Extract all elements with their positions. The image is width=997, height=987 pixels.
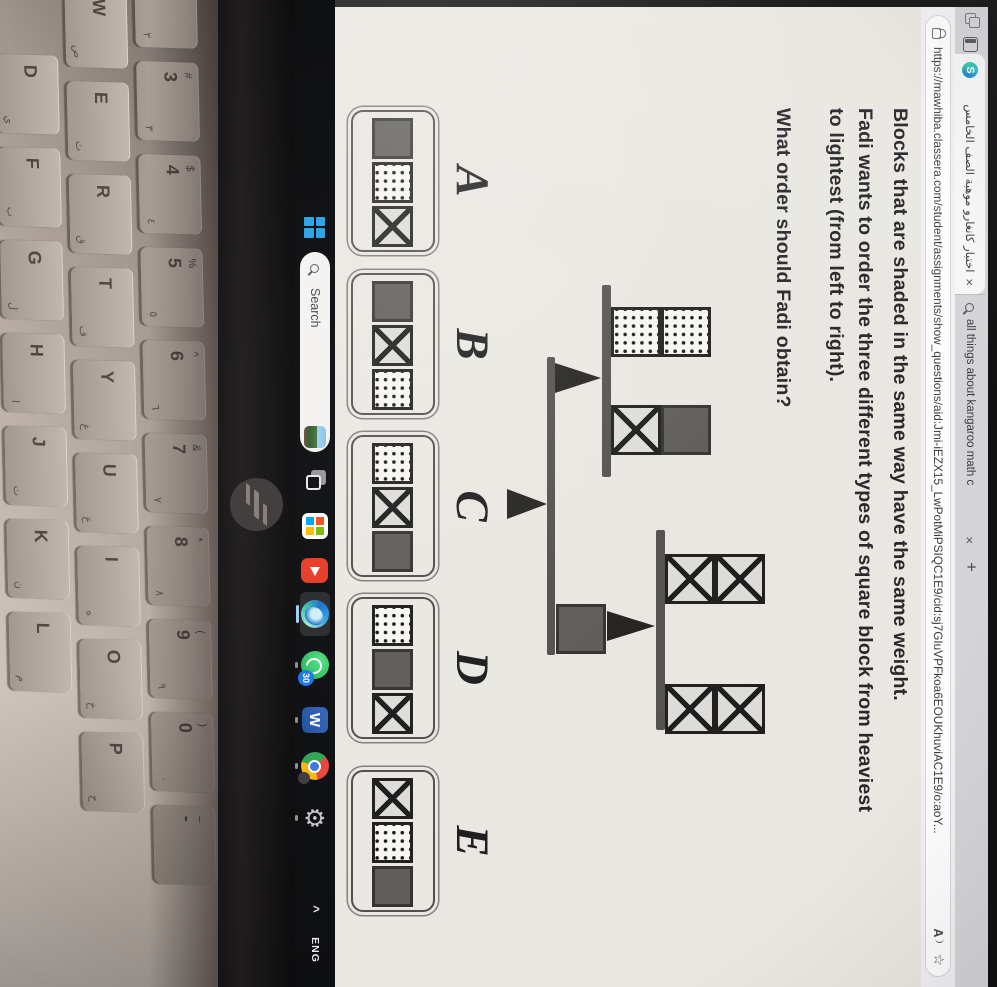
keyboard-key-6: ^6٦ <box>142 340 206 421</box>
option-letter: C <box>441 435 501 577</box>
running-indicator <box>295 662 298 668</box>
keyboard-key-O: Oخ <box>79 639 143 720</box>
main-beam <box>547 357 555 655</box>
balance-figure <box>490 277 782 797</box>
block-x <box>373 778 414 819</box>
hp-logo <box>230 478 283 531</box>
word-button[interactable]: W <box>300 704 330 736</box>
bing-daily-image-icon <box>304 426 326 448</box>
whatsapp-icon: 30 <box>301 651 329 679</box>
keyboard-key-G: Gل <box>0 240 64 321</box>
option-choice-box[interactable] <box>351 110 435 252</box>
hp-logo-glyph <box>246 483 267 526</box>
search-favicon-icon <box>966 303 975 312</box>
keyboard-key-T: Tف <box>71 267 135 348</box>
option-letter: A <box>441 110 501 252</box>
block-gray <box>661 405 711 455</box>
block-dotted <box>373 605 414 646</box>
keyboard-key-9: (9٩ <box>149 619 213 700</box>
laptop-screen: S اختبار كانغارو موهبة الصف الخامس × all… <box>335 0 997 987</box>
block-gray <box>373 531 414 572</box>
settings-button[interactable]: ⚙ <box>300 802 330 834</box>
keyboard-qwerty-row: WصEثRقTفYغUعIهOخPح <box>64 0 145 827</box>
keyboard-key-J: Jت <box>4 426 68 507</box>
laptop-bezel <box>218 0 295 987</box>
left-scale-left-stack <box>611 307 711 357</box>
keyboard-home-row: DيFبGلHاJتKنLم <box>0 54 73 707</box>
keyboard-number-row: @2٢#3٣$4٤%5٥^6٦&7٧*8٨(9٩)0٠_- <box>134 0 217 900</box>
option-letter: D <box>441 597 501 739</box>
question-text-line: to lightest (from left to right). <box>824 108 847 382</box>
option-choice-box[interactable] <box>351 770 435 912</box>
block-x <box>665 684 715 734</box>
read-aloud-icon[interactable]: A <box>931 928 945 943</box>
answer-option-a: A <box>351 110 501 252</box>
block-x <box>611 405 661 455</box>
block-x <box>373 206 414 247</box>
keyboard-key-R: Rق <box>69 174 133 255</box>
block-gray <box>556 604 606 654</box>
gear-icon: ⚙ <box>303 807 328 829</box>
block-gray <box>373 281 414 322</box>
tab-actions-icon[interactable] <box>962 13 980 31</box>
tab-title: all things about kangaroo math c <box>964 319 976 530</box>
block-gray <box>373 118 414 159</box>
edge-button[interactable] <box>300 592 330 636</box>
chrome-icon <box>301 752 329 780</box>
site-info-icon[interactable] <box>932 28 941 39</box>
new-tab-button[interactable]: + <box>961 562 981 572</box>
answer-option-b: B <box>351 273 501 415</box>
block-dotted <box>373 822 414 863</box>
running-indicator <box>295 763 298 769</box>
keyboard-key-I: Iه <box>77 546 141 627</box>
keyboard-key-K: Kن <box>7 519 71 600</box>
edge-icon <box>301 600 329 628</box>
block-x <box>373 693 414 734</box>
option-choice-box[interactable] <box>351 273 435 415</box>
keyboard-key-4: $4٤ <box>138 154 202 235</box>
microsoft-store-button[interactable] <box>300 510 330 542</box>
keyboard-key-P: Pح <box>81 732 145 813</box>
keyboard-key-F: Fب <box>0 147 62 228</box>
search-label: Search <box>308 288 322 426</box>
keyboard-key--: _- <box>153 805 217 886</box>
right-scale-left-stack <box>665 554 765 604</box>
tab-title: اختبار كانغارو موهبة الصف الخامس <box>963 85 977 272</box>
language-indicator[interactable]: ENG <box>300 928 330 972</box>
left-scale-beam <box>602 285 611 477</box>
block-x <box>373 487 414 528</box>
answer-option-e: E <box>351 770 501 912</box>
block-dotted <box>373 443 414 484</box>
answer-option-d: D <box>351 597 501 739</box>
windows-taskbar: Search 30 W <box>295 0 335 987</box>
classera-favicon: S <box>962 62 978 78</box>
start-button[interactable] <box>300 212 330 242</box>
keyboard-key-0: )0٠ <box>151 712 215 793</box>
option-letter: E <box>441 770 501 912</box>
block-dotted <box>611 307 661 357</box>
favorite-star-icon[interactable]: ☆ <box>930 953 946 966</box>
browser-toolbar: https://mawhiba.classera.com/student/ass… <box>921 7 955 987</box>
block-gray <box>373 649 414 690</box>
tab-close-icon[interactable]: × <box>963 278 978 286</box>
option-choice-box[interactable] <box>351 597 435 739</box>
block-x <box>373 325 414 366</box>
main-fulcrum-triangle <box>507 489 547 519</box>
keyboard-key-2: @2٢ <box>134 0 198 49</box>
address-bar[interactable]: https://mawhiba.classera.com/student/ass… <box>925 15 951 977</box>
right-scale-base-block <box>556 604 606 654</box>
tray-chevron-button[interactable]: ^ <box>300 898 330 920</box>
keyboard-deck: @2٢#3٣$4٤%5٥^6٦&7٧*8٨(9٩)0٠_- WصEثRقTفYغ… <box>0 0 218 987</box>
keyboard-key-W: Wص <box>64 0 128 69</box>
search-box[interactable]: Search <box>300 252 330 452</box>
right-scale-fulcrum-triangle <box>607 611 655 641</box>
laptop-photo: S اختبار كانغارو موهبة الصف الخامس × all… <box>0 0 997 987</box>
task-view-icon-front <box>306 475 321 490</box>
question-text-line: Fadi wants to order the three different … <box>853 108 876 812</box>
youtube-button[interactable] <box>300 554 330 586</box>
right-scale-beam <box>656 530 665 730</box>
keyboard-key-H: Hا <box>2 333 66 414</box>
left-scale-fulcrum-triangle <box>555 363 601 393</box>
whatsapp-button[interactable]: 30 <box>300 648 330 682</box>
keyboard-key-L: Lم <box>9 612 73 693</box>
word-icon: W <box>302 707 328 733</box>
block-gray <box>373 866 414 907</box>
option-choice-box[interactable] <box>351 435 435 577</box>
block-x <box>665 554 715 604</box>
keyboard-key-7: &7٧ <box>145 433 209 514</box>
keyboard-key-D: Dي <box>0 54 60 135</box>
left-scale-right-stack <box>611 405 711 455</box>
block-dotted <box>373 369 414 410</box>
microsoft-store-icon <box>302 513 328 539</box>
option-letter: B <box>441 273 501 415</box>
chrome-button[interactable] <box>300 750 330 782</box>
running-indicator <box>295 815 298 821</box>
active-app-indicator <box>296 605 299 623</box>
windows-logo-icon <box>305 217 326 238</box>
block-dotted <box>661 307 711 357</box>
right-scale-right-stack <box>665 684 765 734</box>
running-indicator <box>295 717 298 723</box>
keyboard-key-3: #3٣ <box>136 61 200 142</box>
keyboard-key-Y: Yغ <box>73 360 137 441</box>
block-dotted <box>373 162 414 203</box>
answer-option-c: C <box>351 435 501 577</box>
block-x <box>715 554 765 604</box>
notification-badge: 30 <box>298 670 314 686</box>
tab-close-icon[interactable]: × <box>963 536 978 544</box>
keyboard-key-E: Eث <box>67 81 131 162</box>
search-icon <box>311 264 320 273</box>
task-view-button[interactable] <box>300 466 330 496</box>
question-page: Blocks that are shaded in the same way h… <box>335 7 921 987</box>
laptop-keyboard: @2٢#3٣$4٤%5٥^6٦&7٧*8٨(9٩)0٠_- WصEثRقTفYغ… <box>0 0 218 987</box>
keyboard-key-5: %5٥ <box>140 247 204 328</box>
tab-assignment[interactable]: S اختبار كانغارو موهبة الصف الخامس × <box>955 54 985 294</box>
tab-search[interactable]: all things about kangaroo math c × <box>955 294 985 552</box>
url-text: https://mawhiba.classera.com/student/ass… <box>931 47 945 916</box>
keyboard-key-U: Uع <box>75 453 139 534</box>
question-statement: Blocks that are shaded in the same way h… <box>888 108 911 701</box>
youtube-icon <box>302 558 329 583</box>
block-x <box>715 684 765 734</box>
browser-window-icon[interactable] <box>963 37 978 52</box>
keyboard-key-8: *8٨ <box>147 526 211 607</box>
rotated-laptop: S اختبار كانغارو موهبة الصف الخامس × all… <box>0 0 997 987</box>
browser-tab-strip: S اختبار كانغارو موهبة الصف الخامس × all… <box>955 7 988 987</box>
